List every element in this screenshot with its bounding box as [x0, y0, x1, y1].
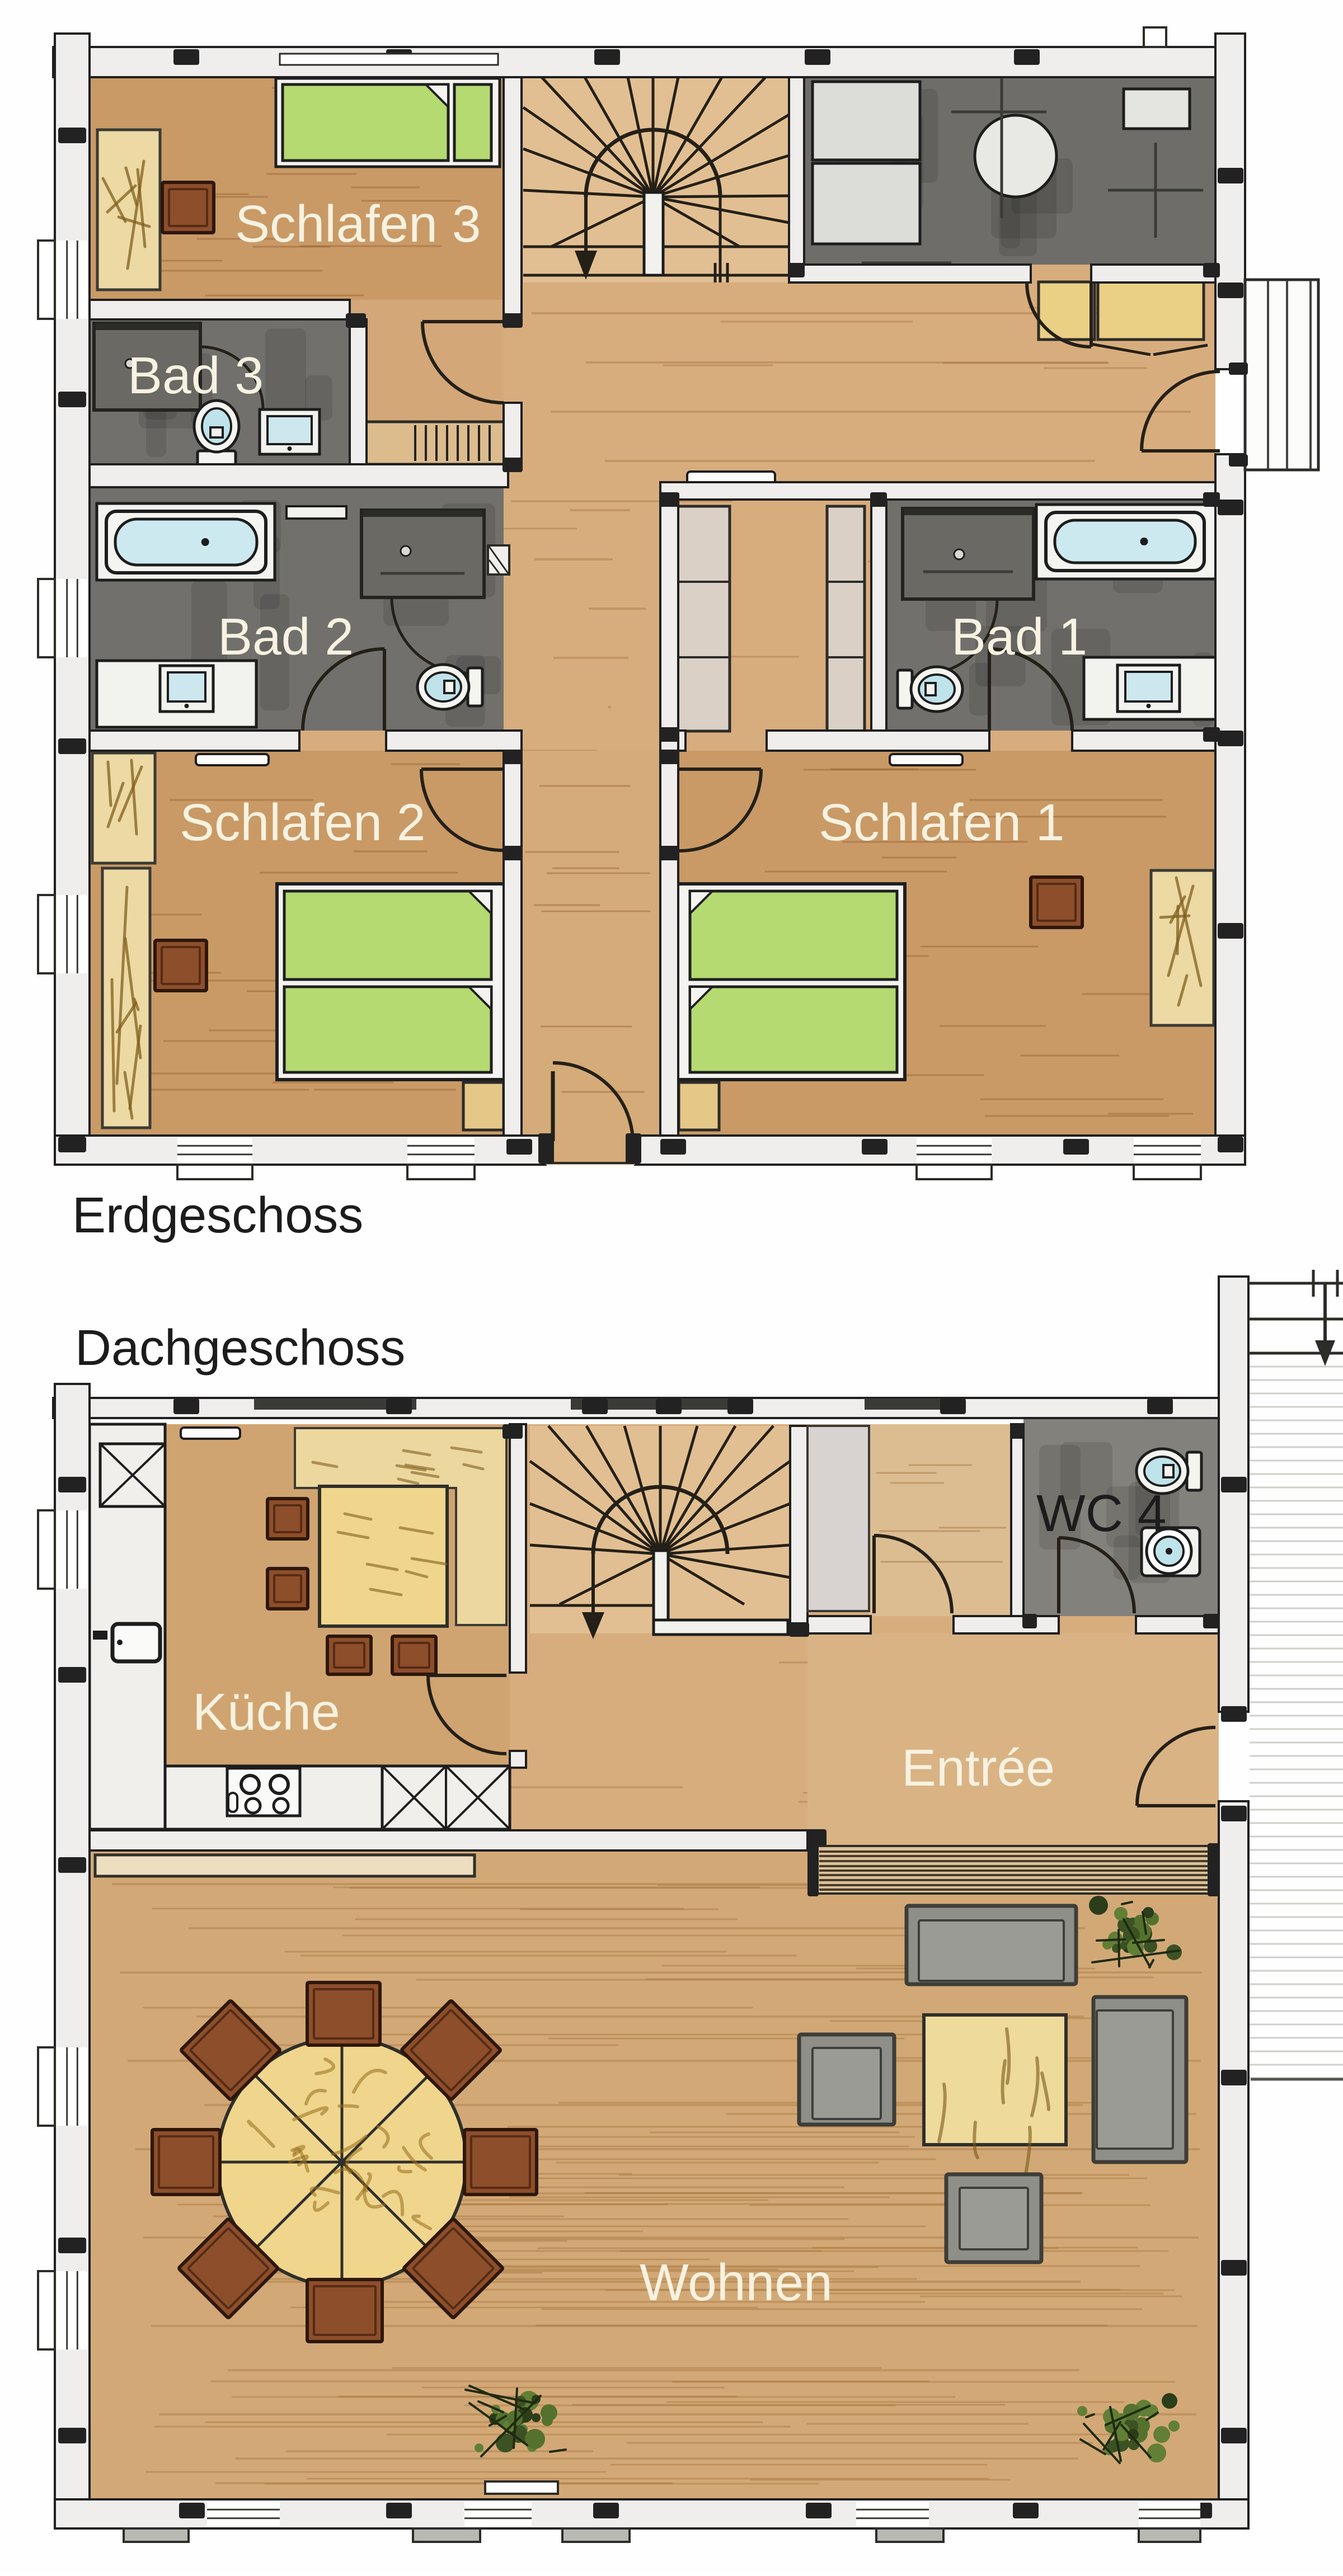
svg-text:Entrée: Entrée [901, 1739, 1055, 1797]
svg-text:Schlafen 2: Schlafen 2 [180, 793, 425, 851]
svg-text:Küche: Küche [192, 1683, 340, 1741]
svg-text:Dachgeschoss: Dachgeschoss [75, 1320, 405, 1376]
svg-text:Bad 1: Bad 1 [951, 607, 1087, 666]
svg-text:WC 4: WC 4 [1036, 1484, 1167, 1542]
svg-text:Wohnen: Wohnen [640, 2253, 833, 2311]
svg-text:Schlafen 3: Schlafen 3 [235, 195, 481, 253]
svg-text:Bad 2: Bad 2 [218, 607, 354, 666]
svg-text:Erdgeschoss: Erdgeschoss [72, 1188, 363, 1244]
svg-text:Schlafen 1: Schlafen 1 [819, 793, 1064, 851]
svg-text:Bad 3: Bad 3 [128, 346, 264, 404]
